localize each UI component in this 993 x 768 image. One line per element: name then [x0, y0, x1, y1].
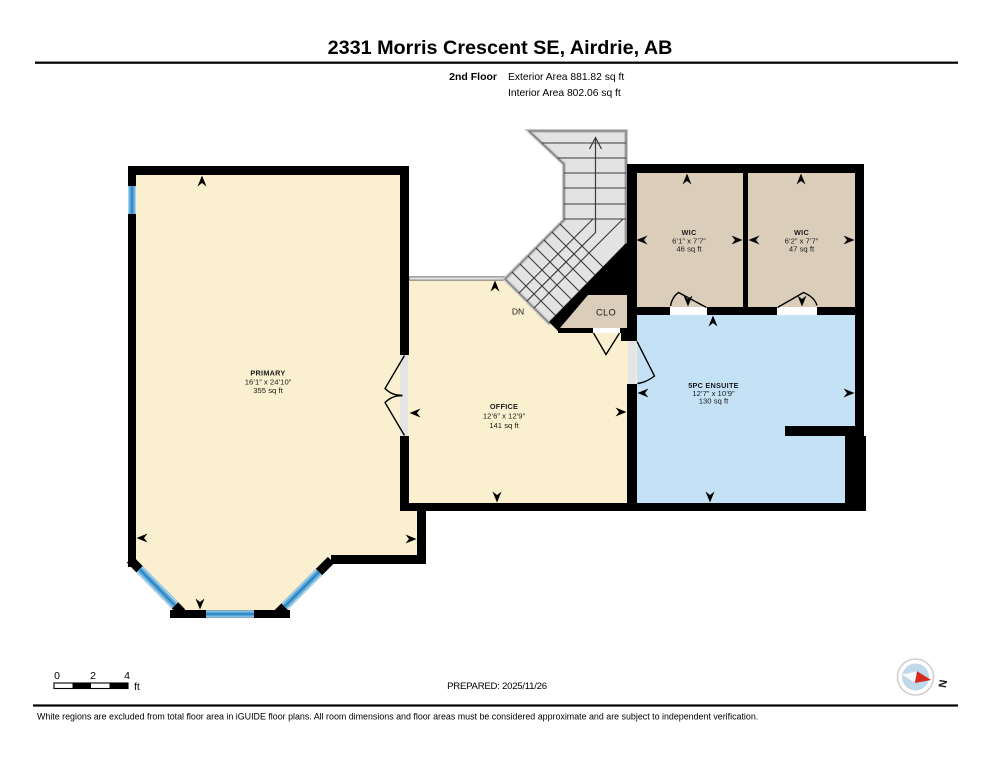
svg-text:PRIMARY: PRIMARY	[250, 369, 285, 378]
svg-text:355 sq ft: 355 sq ft	[253, 386, 283, 395]
svg-text:47 sq ft: 47 sq ft	[789, 245, 815, 254]
svg-text:2nd Floor: 2nd Floor	[449, 71, 497, 83]
svg-text:141 sq ft: 141 sq ft	[489, 421, 519, 430]
svg-text:0: 0	[54, 670, 60, 682]
svg-text:Interior Area 802.06 sq ft: Interior Area 802.06 sq ft	[508, 88, 621, 99]
svg-text:2: 2	[90, 670, 96, 682]
svg-text:DN: DN	[512, 307, 524, 317]
svg-text:Exterior Area 881.82 sq ft: Exterior Area 881.82 sq ft	[508, 72, 624, 83]
svg-text:4: 4	[124, 670, 130, 682]
svg-text:46 sq ft: 46 sq ft	[676, 245, 702, 254]
svg-text:12’6” x 12’9”: 12’6” x 12’9”	[483, 412, 526, 421]
svg-text:OFFICE: OFFICE	[490, 402, 518, 411]
svg-text:ft: ft	[134, 681, 140, 693]
svg-text:White regions are excluded fro: White regions are excluded from total fl…	[37, 712, 758, 722]
svg-text:130 sq ft: 130 sq ft	[699, 397, 729, 406]
svg-text:2331 Morris Crescent SE, Airdr: 2331 Morris Crescent SE, Airdrie, AB	[328, 37, 673, 59]
svg-text:PREPARED: 2025/11/26: PREPARED: 2025/11/26	[447, 681, 547, 692]
svg-text:CLO: CLO	[596, 308, 616, 318]
